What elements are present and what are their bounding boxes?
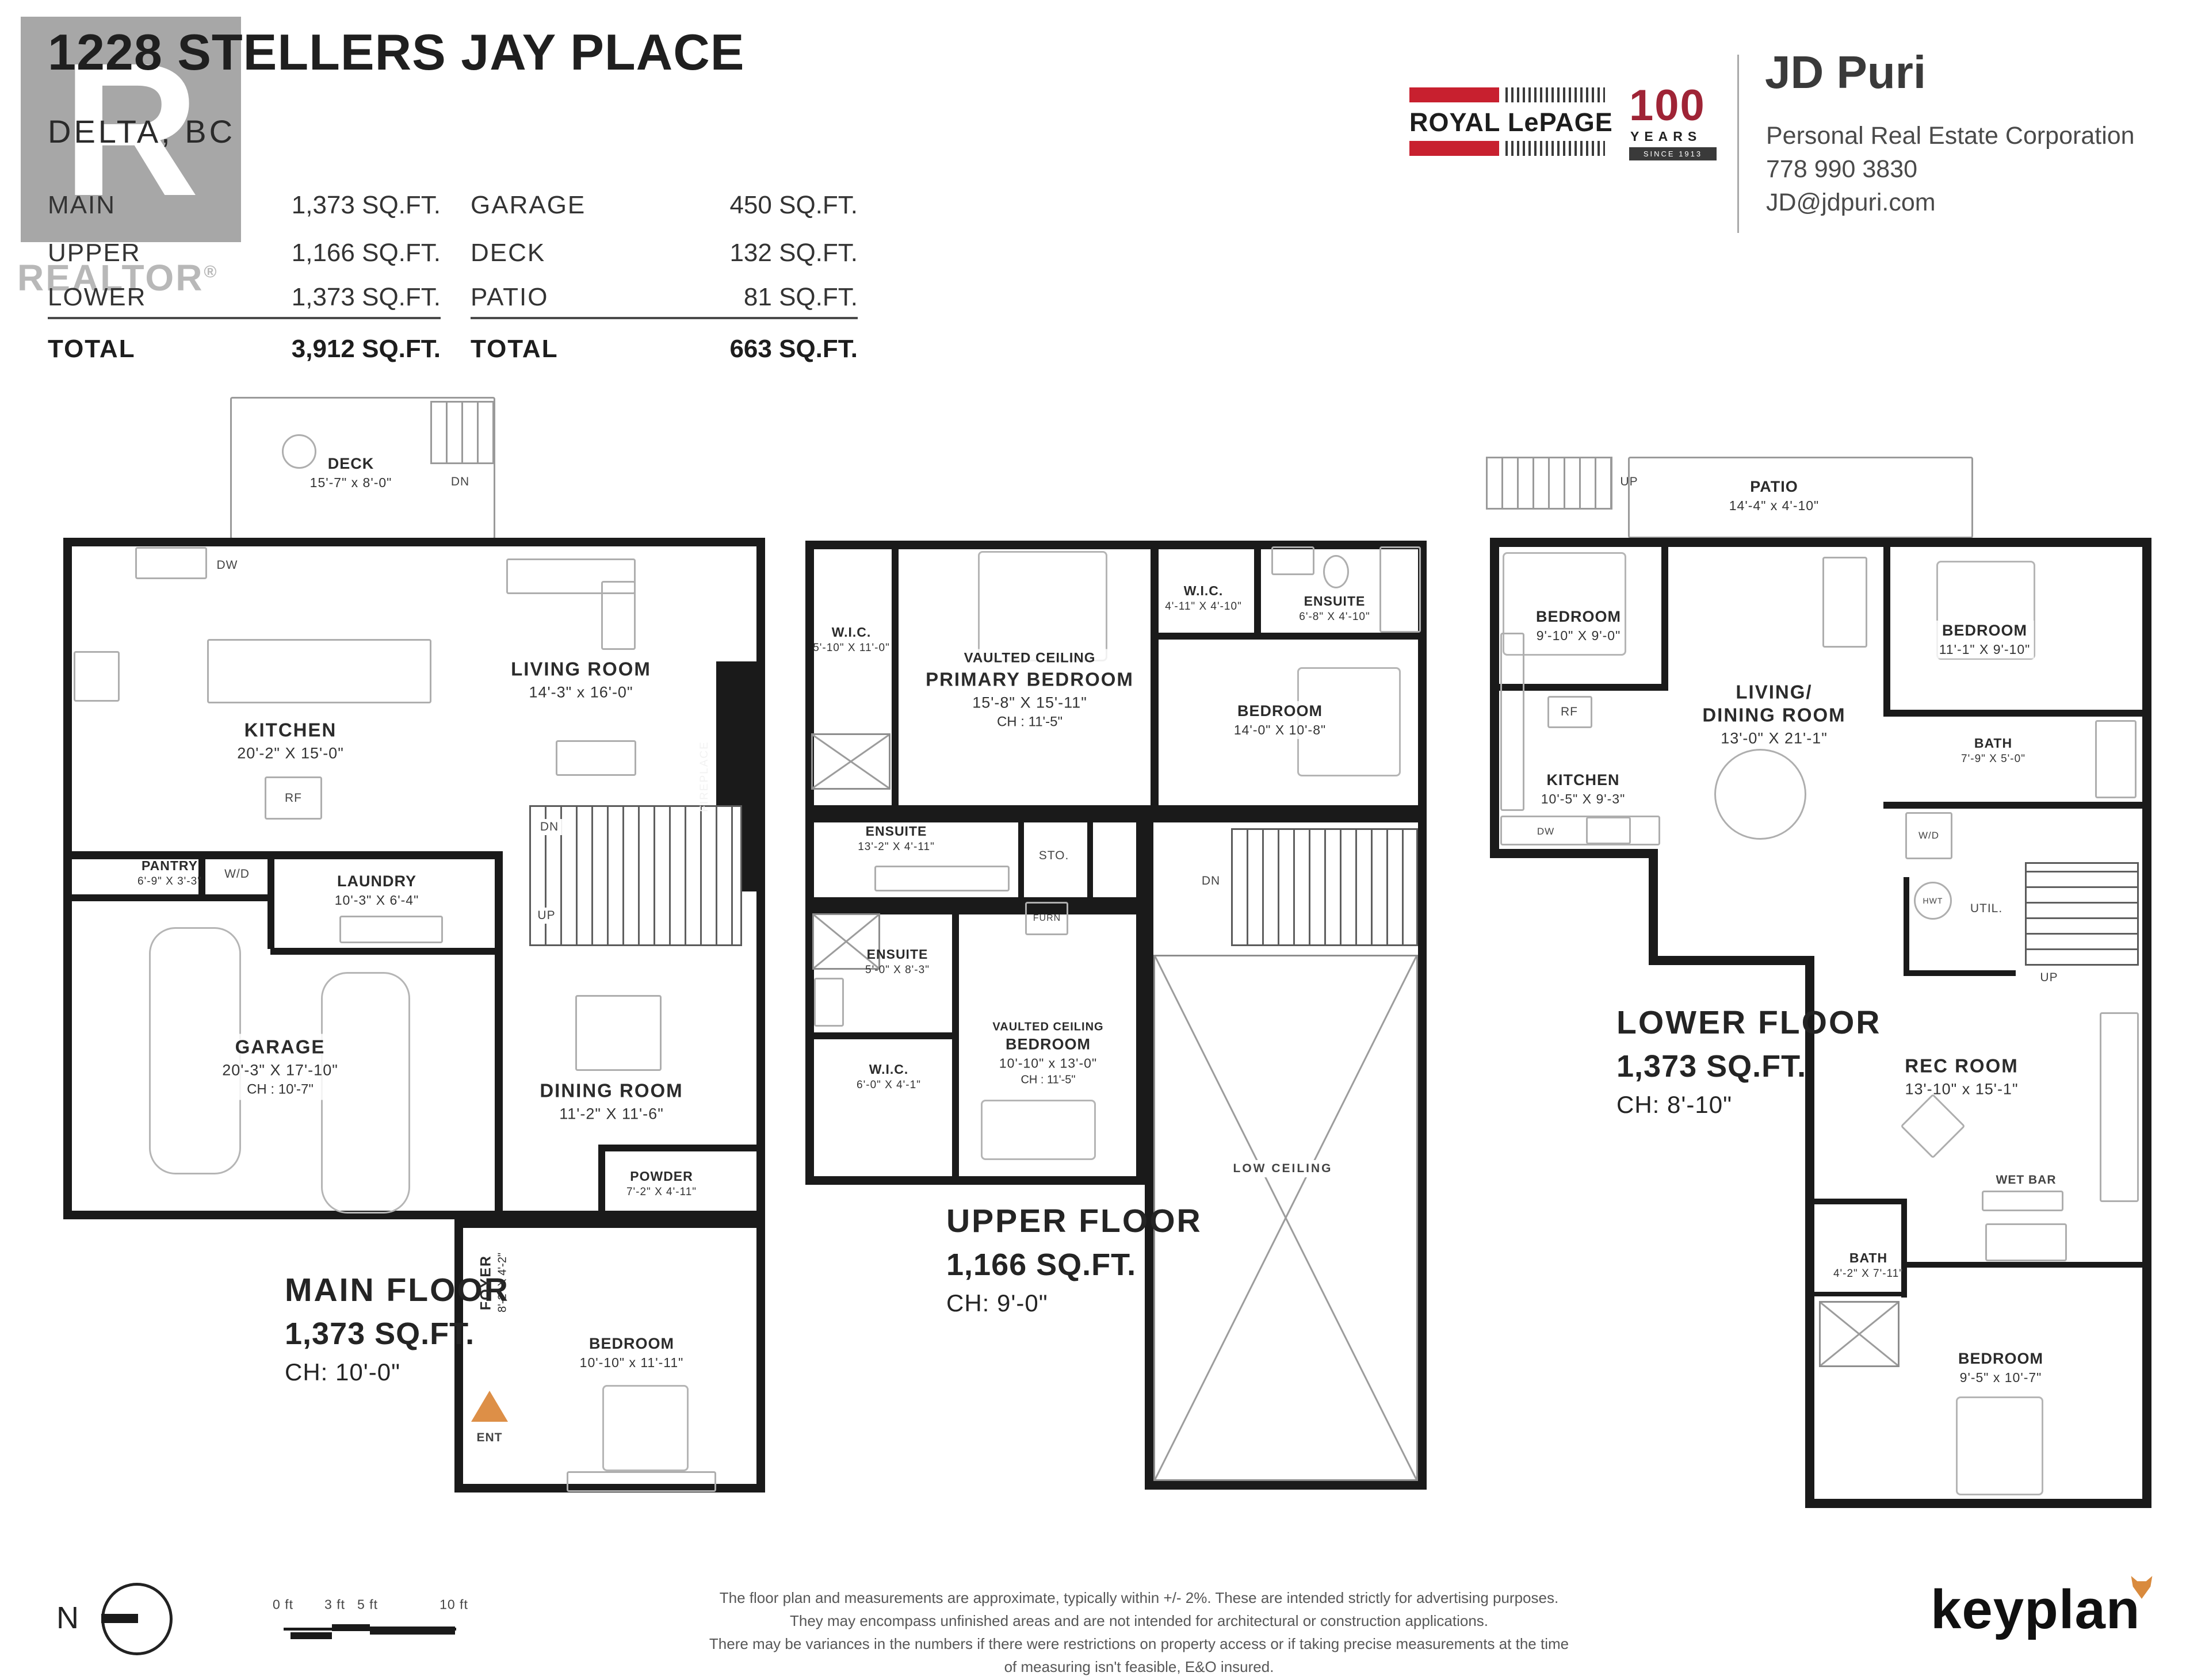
main-floor-title: MAIN FLOOR 1,373 SQ.FT. CH: 10'-0": [285, 1271, 510, 1386]
table-row: GARAGE 450 SQ.FT.: [471, 191, 858, 220]
kitchen-sink: [135, 547, 207, 579]
laundry-counter: [339, 916, 443, 943]
room-label-laundry: LAUNDRY 10'-3" X 6'-4": [335, 872, 419, 908]
kitchen-island: [207, 639, 431, 703]
room-label-powder: POWDER 7'-2" X 4'-11": [626, 1169, 697, 1199]
stairs-up-label: UP: [1620, 475, 1638, 489]
fireplace-label: FIREPLACE: [698, 741, 711, 812]
sofa: [601, 581, 636, 650]
royal-lepage-stripe: [1409, 141, 1605, 156]
agent-corp: Personal Real Estate Corporation: [1766, 122, 2135, 150]
table-row: PATIO 81 SQ.FT.: [471, 283, 858, 312]
since-1913-label: SINCE 1913: [1629, 147, 1717, 160]
agent-name: JD Puri: [1765, 46, 1926, 99]
bay-window: [567, 1471, 716, 1492]
dining-table: [575, 995, 662, 1071]
entry-arrow-icon: [471, 1391, 508, 1422]
room-label-bedroom: BEDROOM 9'-5" x 10'-7": [1955, 1349, 2047, 1387]
room-label-primary-bedroom: VAULTED CEILING PRIMARY BEDROOM 15'-8" X…: [921, 649, 1138, 732]
room-label-kitchen: KITCHEN 10'-5" X 9'-3": [1538, 771, 1629, 808]
toilet: [1323, 555, 1349, 588]
scale-bar-segment: [370, 1627, 455, 1635]
keyplan-fox-icon: [2128, 1574, 2155, 1601]
header-divider: [1737, 55, 1739, 233]
wd-label: W/D: [1918, 830, 1939, 841]
closet: [1985, 1223, 2067, 1261]
scale-tick-label: 3 ft: [324, 1597, 345, 1613]
room-label-deck: DECK 15'-7" x 8'-0": [310, 455, 392, 491]
room-label-wic: W.I.C. 6'-0" X 4'-1": [857, 1062, 921, 1092]
table-row: DECK 132 SQ.FT.: [471, 239, 858, 267]
sink: [814, 978, 844, 1027]
armchair: [1822, 557, 1867, 648]
royal-lepage-stripe: [1409, 87, 1605, 102]
wet-bar-label: WET BAR: [1996, 1173, 2057, 1187]
sofa: [2100, 1012, 2139, 1202]
furn-label: FURN: [1033, 913, 1061, 924]
table-row: UPPER 1,166 SQ.FT.: [48, 239, 441, 267]
shower: [811, 733, 891, 790]
dw-label: DW: [217, 558, 238, 572]
room-label-bedroom: BEDROOM 11'-1" X 9'-10": [1936, 621, 2034, 659]
room-label-bedroom: BEDROOM 14'-0" X 10'-8": [1230, 701, 1329, 739]
upper-stairs: [1231, 828, 1418, 946]
stairs-dn-label: DN: [1199, 873, 1223, 889]
keyplan-logo: keyplan: [1931, 1578, 2141, 1641]
bed: [1956, 1396, 2043, 1495]
agent-phone: 778 990 3830: [1766, 155, 1917, 183]
stairs-dn-label: DN: [537, 819, 562, 835]
scale-bar-segment: [291, 1632, 332, 1639]
kitchen-counter: [1500, 633, 1524, 811]
room-label-bedroom: BEDROOM 10'-10" x 11'-11": [580, 1335, 684, 1371]
room-label-foyer: FOYER 8'-2" X 4'-2": [478, 1253, 510, 1312]
dw-label: DW: [1537, 826, 1554, 837]
scale-tick-label: 5 ft: [357, 1597, 378, 1613]
royal-lepage-logo: ROYAL LePAGE: [1409, 108, 1613, 137]
agent-email: JD@jdpuri.com: [1766, 189, 1936, 217]
vanity: [874, 866, 1010, 891]
dining-table: [1714, 749, 1806, 840]
scale-bar-segment: [332, 1624, 370, 1631]
table-total-row: TOTAL 3,912 SQ.FT.: [48, 335, 441, 363]
util-label: UTIL.: [1970, 902, 2002, 916]
floor-plan-sheet: R REALTOR® 1228 STELLERS JAY PLACE DELTA…: [0, 0, 2209, 1680]
room-label-kitchen: KITCHEN 20'-2" X 15'-0": [237, 720, 344, 763]
room-label-living: LIVING ROOM 14'-3" x 16'-0": [511, 659, 651, 702]
bathtub: [1379, 546, 1421, 633]
deck-dn-label: DN: [451, 475, 469, 489]
loveseat: [556, 740, 636, 776]
bathtub: [2095, 720, 2137, 798]
upper-outline-mid: [805, 814, 1145, 906]
scale-tick-label: 10 ft: [439, 1597, 468, 1613]
room-label-bedroom: BEDROOM 9'-10" X 9'-0": [1532, 607, 1625, 645]
wet-bar-counter: [1982, 1191, 2063, 1211]
room-label-ensuite: ENSUITE 5'-0" X 8'-3": [865, 947, 930, 977]
page-title: 1228 STELLERS JAY PLACE: [48, 23, 744, 82]
room-label-pantry: PANTRY 6'-9" X 3'-3": [137, 858, 202, 888]
rf-label: RF: [285, 791, 302, 805]
north-label: N: [56, 1600, 79, 1636]
low-ceiling-label: LOW CEILING: [1229, 1160, 1337, 1177]
table-divider: [471, 317, 858, 319]
deck-stairs: [430, 401, 495, 464]
room-label-bedroom: VAULTED CEILING BEDROOM 10'-10" x 13'-0"…: [992, 1021, 1103, 1087]
rf-label: RF: [1561, 705, 1578, 719]
years-label: YEARS: [1630, 129, 1702, 144]
lower-stairs: [2025, 862, 2139, 966]
room-label-ensuite: ENSUITE 6'-8" X 4'-10": [1299, 594, 1370, 623]
room-label-garage: GARAGE 20'-3" X 17'-10" CH : 10'-7": [216, 1034, 344, 1100]
stove-icon: [1586, 817, 1631, 844]
armchair: [1900, 1093, 1965, 1158]
table-row: LOWER 1,373 SQ.FT.: [48, 283, 441, 312]
ent-label: ENT: [477, 1431, 503, 1445]
bed: [981, 1100, 1096, 1160]
stairs-up-label: UP: [2040, 971, 2058, 985]
room-label-ensuite: ENSUITE 13'-2" X 4'-11": [858, 824, 935, 854]
stairs-up-label: UP: [534, 908, 559, 924]
scale-tick-label: 0 ft: [273, 1597, 293, 1613]
100-years-badge: 100: [1629, 81, 1706, 131]
room-label-rec-room: REC ROOM 13'-10" x 15'-1": [1905, 1055, 2019, 1099]
upper-floor-title: UPPER FLOOR 1,166 SQ.FT. CH: 9'-0": [946, 1202, 1202, 1317]
shower: [1819, 1301, 1900, 1367]
room-label-wic: W.I.C. 5'-10" X 11'-0": [813, 625, 890, 655]
room-label-living-dining: LIVING/ DINING ROOM 13'-0" X 21'-1": [1702, 682, 1845, 748]
disclaimer: The floor plan and measurements are appr…: [708, 1586, 1570, 1678]
wd-label: W/D: [224, 867, 250, 881]
room-label-patio: PATIO 14'-4" x 4'-10": [1729, 478, 1819, 514]
storage-label: STO.: [1039, 849, 1069, 863]
table-total-row: TOTAL 663 SQ.FT.: [471, 335, 858, 363]
exterior-stairs: [1486, 457, 1612, 510]
stove-icon: [74, 651, 120, 702]
table-divider: [48, 317, 441, 319]
room-label-wic: W.I.C. 4'-11" X 4'-10": [1165, 583, 1242, 613]
page-subtitle: DELTA, BC: [48, 113, 235, 150]
north-needle: [101, 1614, 138, 1623]
hwt-label: HWT: [1923, 896, 1943, 905]
table-row: MAIN 1,373 SQ.FT.: [48, 191, 441, 220]
bed: [978, 551, 1107, 661]
bed: [602, 1385, 689, 1471]
room-label-bath: BATH 4'-2" X 7'-11": [1833, 1250, 1904, 1280]
kitchen-counter: [1500, 816, 1660, 845]
sink: [1271, 546, 1314, 575]
room-label-bath: BATH 7'-9" X 5'-0": [1961, 736, 2025, 766]
lower-floor-title: LOWER FLOOR 1,373 SQ.FT. CH: 8'-10": [1616, 1004, 1881, 1119]
room-label-dining: DINING ROOM 11'-2" X 11'-6": [540, 1080, 683, 1123]
